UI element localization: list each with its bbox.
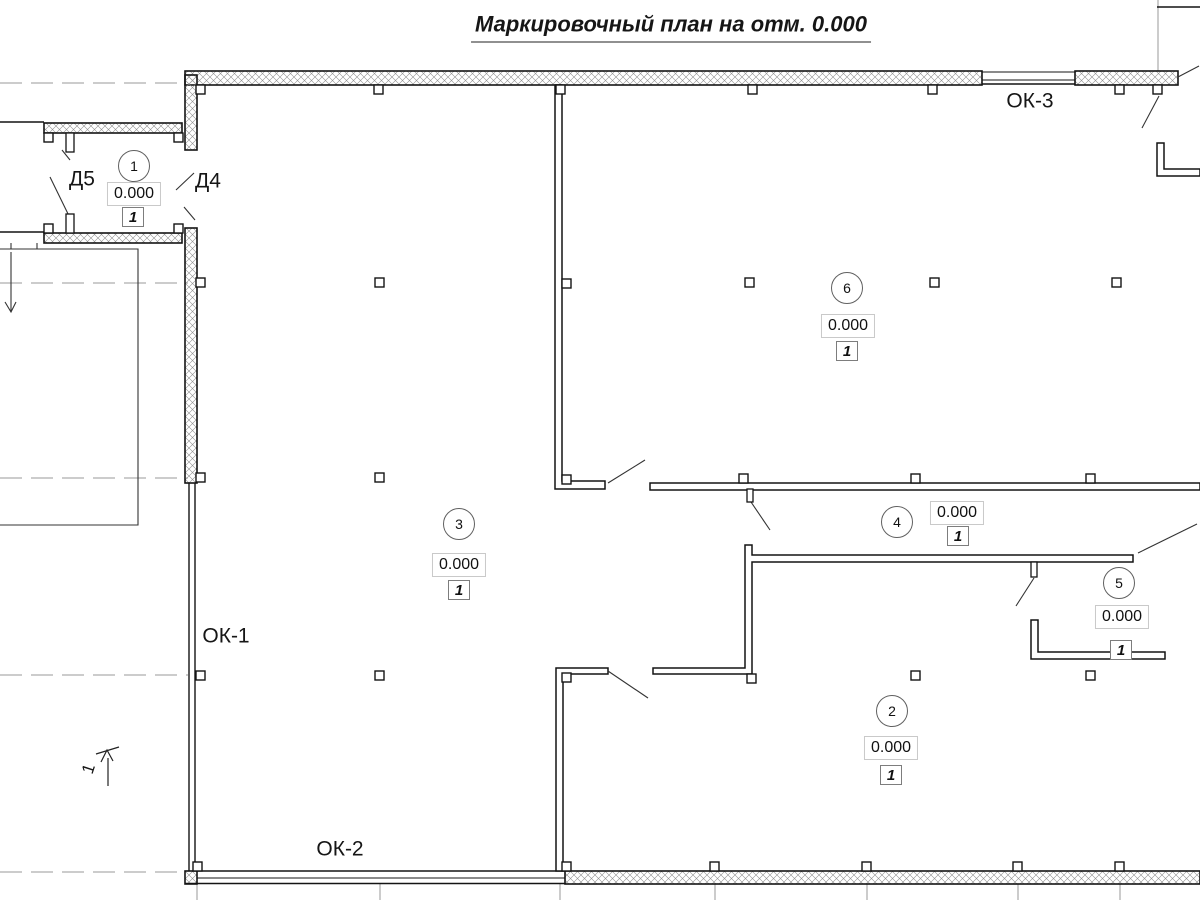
room-elevation: 0.000 [107,182,161,206]
door-swings-leaders [50,66,1199,698]
window-bands [185,72,1075,884]
room-floor-type-badge: 1 [448,580,470,600]
door-label-d4: Д4 [195,171,221,192]
room-floor-type-badge: 1 [1110,640,1132,660]
window-label-ok1: ОК-1 [202,626,249,647]
room-floor-type-badge: 1 [122,207,144,227]
exterior-walls [44,71,1200,884]
floor-plan-drawing [0,0,1200,900]
room-number-bubble: 6 [831,272,863,304]
room-elevation: 0.000 [432,553,486,577]
floor-plan-canvas: Маркировочный план на отм. 0.000 1 0.000… [0,0,1200,900]
room-number-bubble: 4 [881,506,913,538]
room-elevation: 0.000 [930,501,984,525]
door-label-d5: Д5 [69,169,95,190]
room-number-bubble: 3 [443,508,475,540]
room-elevation: 0.000 [821,314,875,338]
window-label-ok2: ОК-2 [316,839,363,860]
room-number-bubble: 1 [118,150,150,182]
room-elevation: 0.000 [864,736,918,760]
room-elevation: 0.000 [1095,605,1149,629]
room-number-bubble: 5 [1103,567,1135,599]
room-floor-type-badge: 1 [880,765,902,785]
stairs [0,243,138,525]
room-number-bubble: 2 [876,695,908,727]
columns [44,85,1162,871]
plan-title: Маркировочный план на отм. 0.000 [471,12,871,43]
room-floor-type-badge: 1 [836,341,858,361]
room-floor-type-badge: 1 [947,526,969,546]
window-label-ok3: ОК-3 [1006,91,1053,112]
